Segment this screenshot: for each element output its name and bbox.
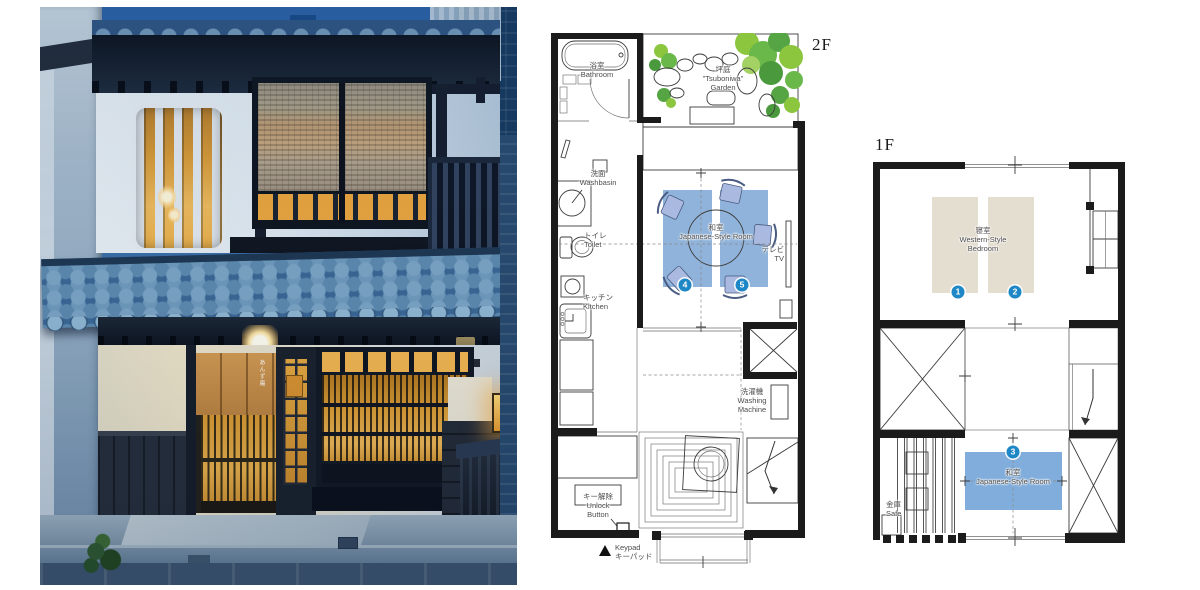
drain-cover: [338, 537, 358, 549]
label-japanese-room-1f: 和室Japanese-Style Room: [976, 469, 1050, 487]
page: あんず庵 2F: [0, 0, 1200, 590]
label-keypad: Keypadキーパッド: [615, 544, 652, 562]
lamp-flare: [168, 207, 180, 223]
floor-label-2f: 2F: [812, 36, 832, 53]
wood-post: [186, 345, 196, 515]
label-garden: 坪庭"Tsuboniwa"Garden: [703, 66, 744, 92]
lamp-flare: [158, 185, 176, 209]
machiya-photo: あんず庵: [40, 7, 517, 585]
label-tv: テレビTV: [762, 246, 785, 264]
washing-machine-symbol: [771, 385, 788, 419]
atrium-void: [639, 432, 743, 528]
label-safe: 金庫Safe: [886, 501, 901, 519]
first-floor-eave: [98, 317, 502, 345]
bamboo-blind: [258, 83, 339, 191]
floorplan-1f: 1F: [873, 136, 1125, 550]
label-bathroom: 浴室Bathroom: [581, 62, 614, 80]
balcony-fence: [428, 157, 506, 259]
wood-beam-end: [476, 77, 485, 103]
door-sign: [286, 375, 303, 397]
floorplan-2f: 浴室Bathroom 坪庭"Tsuboniwa"Garden 洗面Washbas…: [551, 33, 805, 570]
bamboo-blind-window: [252, 77, 432, 229]
window-mullion: [339, 83, 345, 223]
label-bedroom: 寝室Western-StyleBedroom: [960, 227, 1007, 253]
label-toilet: トイレToilet: [584, 232, 607, 250]
potted-plant: [82, 529, 128, 585]
entrance-apron: [121, 515, 371, 545]
wood-wainscot-left: [98, 431, 188, 520]
floorplan-1f-drawing: [873, 136, 1125, 550]
badge-2: 2: [1009, 286, 1022, 299]
badge-1: 1: [952, 286, 965, 299]
label-washing-machine: 洗濯機WashingMachine: [738, 388, 767, 414]
slatted-window: [132, 104, 226, 252]
tv-stand: [786, 221, 791, 287]
noren-text: あんず庵: [257, 359, 266, 411]
label-kitchen: キッチンKitchen: [583, 294, 613, 312]
rooftop-tile-ridge: [92, 20, 500, 36]
badge-5: 5: [736, 279, 749, 292]
plaster-patch-right: [448, 377, 492, 421]
badge-3: 3: [1007, 446, 1020, 459]
keypad-marker-icon: [599, 545, 611, 556]
lattice-window-transom: [322, 352, 468, 372]
bamboo-blind: [345, 83, 426, 191]
entrance-lattice-door: [196, 415, 286, 513]
noren-curtain: あんず庵: [196, 353, 276, 415]
street-pavement: [40, 515, 517, 585]
label-japanese-room-2f: 和室Japanese-Style Room: [679, 224, 753, 242]
label-washbasin: 洗面Washbasin: [580, 170, 617, 188]
entrance-side-frame: [276, 347, 316, 515]
label-unlock-button: キー解除UnlockButton: [583, 493, 613, 519]
badge-4: 4: [679, 279, 692, 292]
